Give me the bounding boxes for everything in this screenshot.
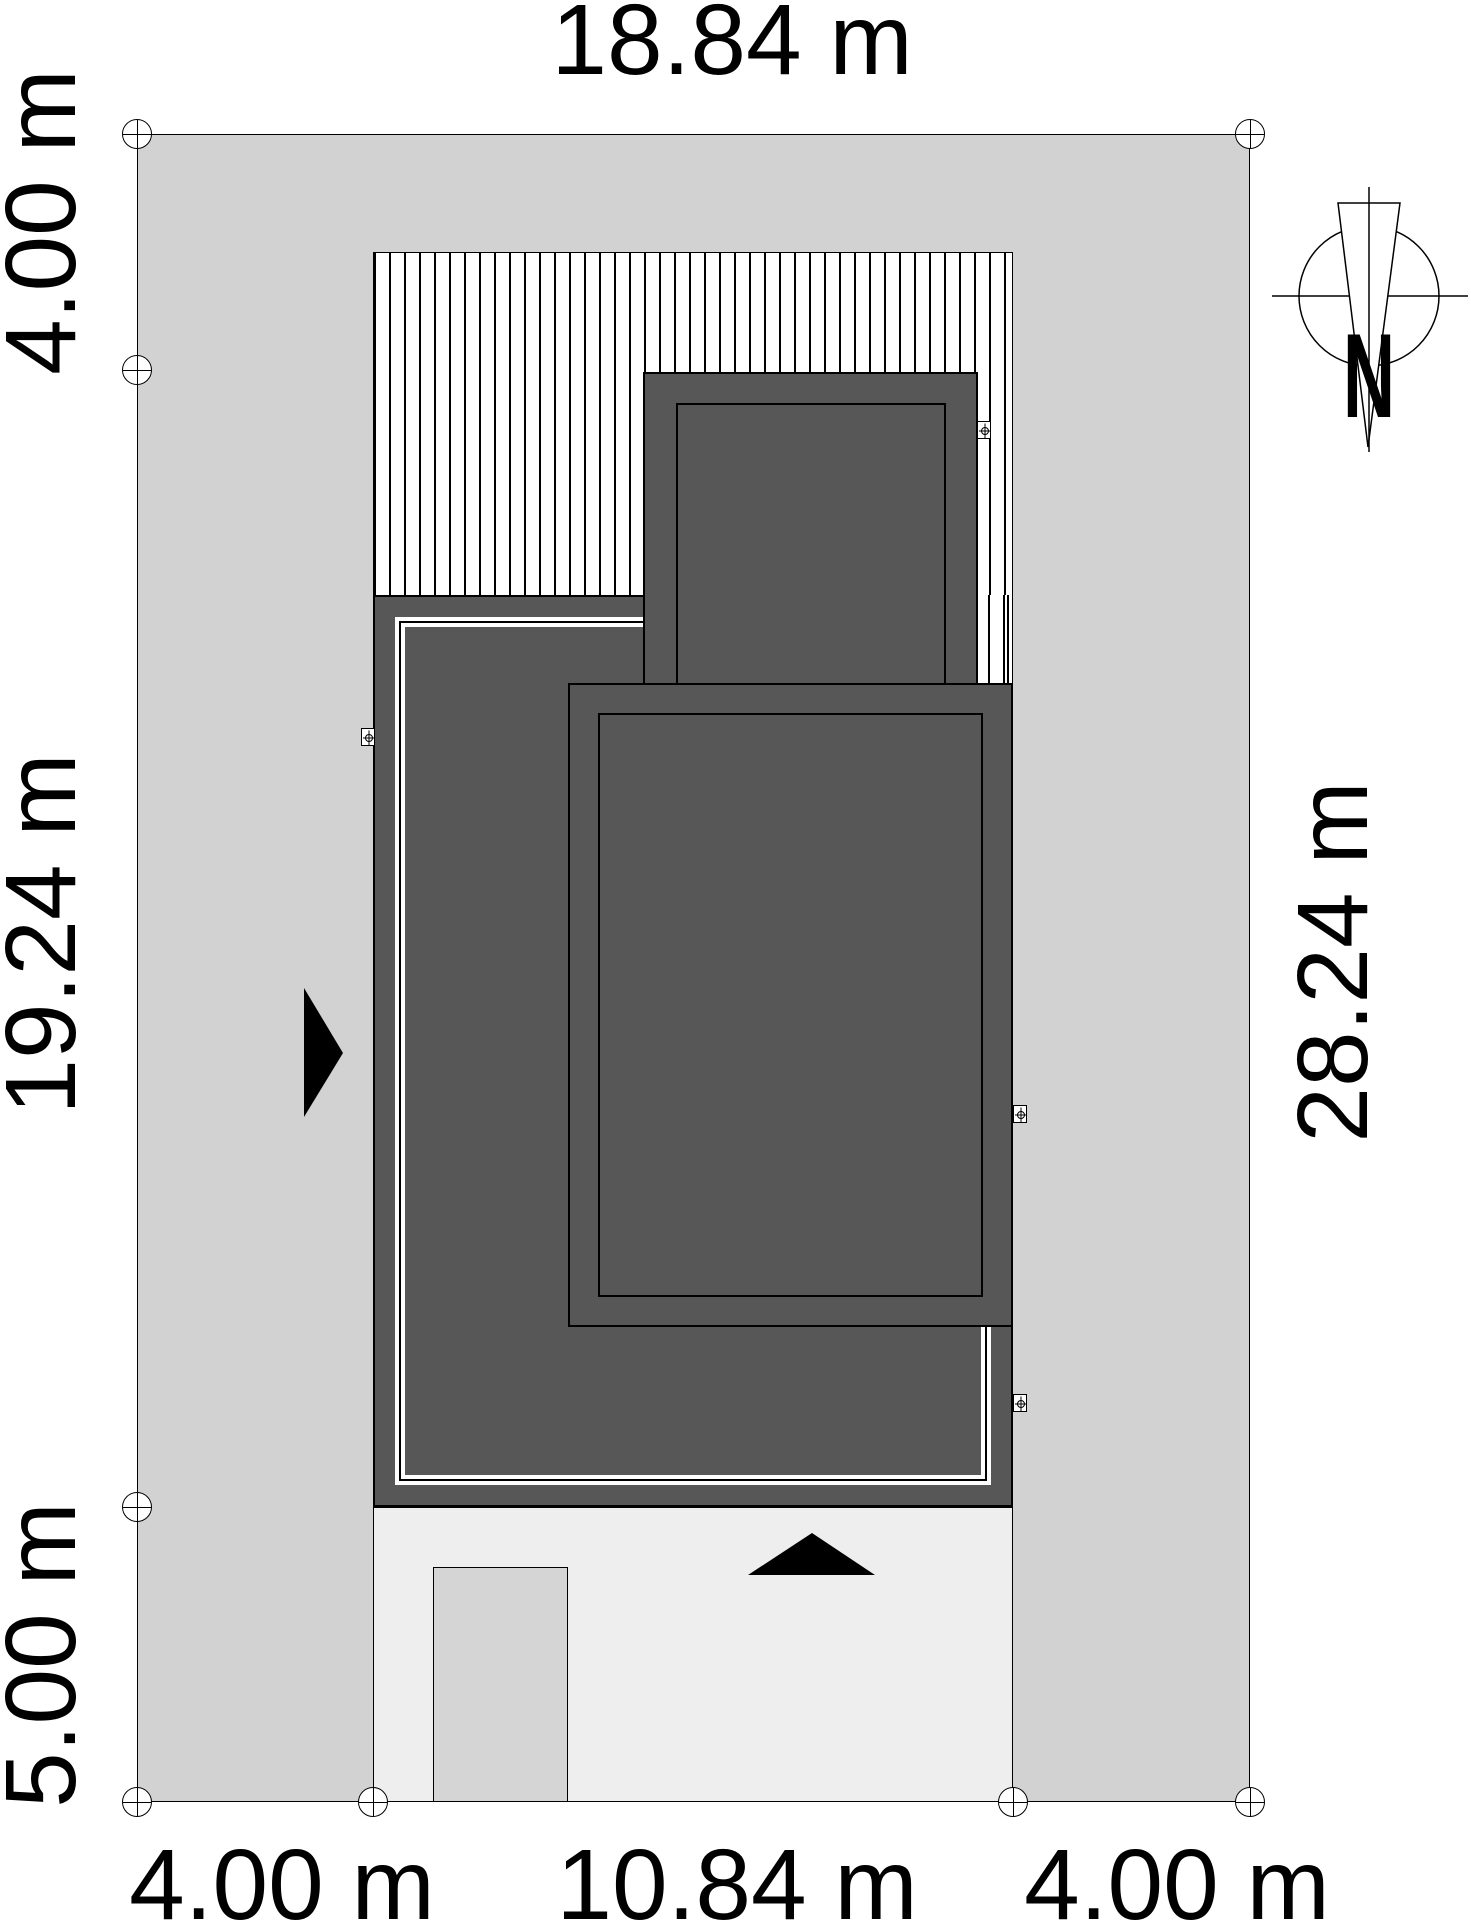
dim-top: 18.84 m	[551, 0, 912, 90]
roof-hatch-strip	[978, 595, 1013, 683]
site-plan: N 18.84 m 4.00 m 19.24 m 5.00 m 28.24 m …	[0, 0, 1471, 1928]
dim-left-lower: 5.00 m	[0, 1502, 91, 1808]
side-entrance-arrow-icon	[304, 988, 343, 1117]
survey-marker-icon	[361, 728, 375, 746]
boundary-point	[122, 1787, 152, 1817]
survey-marker-icon	[1013, 1394, 1027, 1412]
dim-right: 28.24 m	[1283, 781, 1383, 1142]
building-wing	[643, 372, 978, 683]
boundary-point	[1235, 1787, 1265, 1817]
main-roof	[568, 683, 1013, 1327]
survey-marker-icon	[977, 421, 991, 439]
compass-icon: N	[1260, 180, 1471, 460]
dim-left-middle: 19.24 m	[0, 753, 91, 1114]
dim-left-upper: 4.00 m	[0, 69, 91, 375]
north-label: N	[1343, 309, 1395, 443]
boundary-point	[1235, 119, 1265, 149]
dim-bottom-middle: 10.84 m	[556, 1835, 917, 1928]
survey-marker-icon	[1013, 1105, 1027, 1123]
boundary-point	[122, 119, 152, 149]
compass-rose: N	[1260, 180, 1471, 460]
dim-bottom-right: 4.00 m	[1024, 1835, 1330, 1928]
wing-inner-outline	[676, 403, 946, 683]
walkway	[433, 1567, 568, 1802]
boundary-point	[358, 1787, 388, 1817]
main-roof-inner-outline	[598, 713, 983, 1297]
boundary-point	[122, 355, 152, 385]
boundary-point	[122, 1492, 152, 1522]
entrance-arrow-icon	[748, 1533, 875, 1575]
boundary-point	[998, 1787, 1028, 1817]
dim-bottom-left: 4.00 m	[129, 1835, 435, 1928]
